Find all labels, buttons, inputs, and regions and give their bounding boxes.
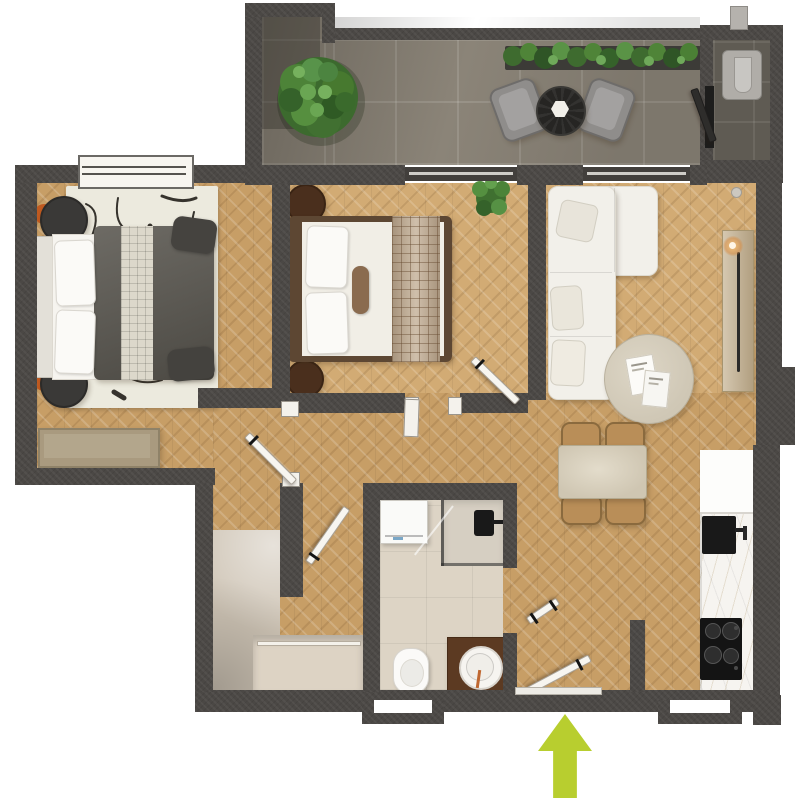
chair-cushion bbox=[585, 86, 626, 132]
bed-main-accent-pillow-1 bbox=[170, 215, 218, 255]
wall-corner-bottom-right bbox=[753, 695, 781, 725]
sofa-pillow-2 bbox=[550, 285, 585, 331]
bed-second-bolster bbox=[352, 266, 369, 314]
shower-glass-horizontal bbox=[441, 563, 505, 566]
wall-bedroom-second-right bbox=[528, 183, 546, 400]
wall-bathroom-left bbox=[363, 483, 380, 692]
entrance-arrow bbox=[538, 714, 592, 798]
toilet bbox=[393, 648, 429, 694]
coffee-table-magazine-2 bbox=[641, 370, 671, 409]
sofa-seam-2 bbox=[550, 336, 612, 337]
balcony-planter-flowers bbox=[503, 38, 703, 74]
washing-machine bbox=[380, 500, 428, 544]
heater-pipe-body bbox=[734, 57, 752, 93]
burner-1 bbox=[705, 623, 721, 639]
bed-main-headboard bbox=[34, 236, 54, 378]
wall-kitchen-stub bbox=[630, 620, 645, 692]
console-candle bbox=[729, 242, 736, 249]
notch-left-bottom bbox=[362, 712, 444, 724]
wall-exterior-right-upper bbox=[756, 165, 782, 367]
dining-table bbox=[558, 445, 647, 499]
sofa-seam-3 bbox=[614, 188, 615, 272]
bed-main-runner bbox=[121, 226, 153, 380]
sofa-pillow-3 bbox=[550, 339, 586, 387]
door-jamb-3 bbox=[448, 397, 462, 415]
wall-balcony-step bbox=[322, 3, 335, 43]
wall-hall-stub bbox=[280, 483, 303, 597]
wall-bathroom-right-lower bbox=[503, 633, 517, 692]
wall-thermostat bbox=[731, 187, 742, 198]
door-jamb-1 bbox=[281, 401, 299, 417]
wall-balcony-band-c bbox=[690, 165, 707, 185]
water-heater bbox=[722, 50, 762, 100]
kitchen-fridge-cabinet bbox=[700, 450, 755, 514]
wall-bedroom-main-bottom bbox=[15, 468, 215, 485]
wall-bedroom-main-south bbox=[198, 388, 290, 408]
kitchen-sink bbox=[702, 516, 736, 554]
wall-balcony-top bbox=[335, 28, 707, 40]
chair-cushion bbox=[497, 86, 538, 132]
bed-second-runner bbox=[392, 216, 440, 362]
notch-right-bottom bbox=[658, 712, 742, 724]
window-bedroom-main bbox=[78, 155, 194, 189]
cooktop-knob-2 bbox=[734, 666, 738, 670]
wall-entry-left bbox=[195, 483, 213, 692]
sofa-seam-1 bbox=[550, 272, 612, 273]
bench-top bbox=[44, 434, 150, 458]
wall-exterior-left bbox=[15, 165, 37, 485]
wardrobe-track bbox=[257, 641, 361, 646]
wall-bedrooms-divider bbox=[272, 183, 290, 405]
wall-exterior-right-bump bbox=[756, 367, 795, 445]
bed-second-pillow-1 bbox=[305, 225, 349, 288]
sofa-pillow-1 bbox=[554, 198, 599, 243]
console-handle bbox=[737, 252, 740, 372]
bed-second-pillow-2 bbox=[305, 291, 349, 354]
burner-2 bbox=[722, 622, 740, 640]
notch-left-inset bbox=[374, 700, 432, 713]
wall-balcony-left bbox=[245, 3, 262, 177]
bed-main-pillow-1 bbox=[54, 239, 96, 306]
toilet-seat bbox=[400, 659, 424, 687]
wall-utility-right bbox=[770, 25, 783, 165]
sliding-door-bedroom-second bbox=[405, 167, 517, 181]
shower-head bbox=[474, 510, 494, 536]
wall-balcony-band-a bbox=[245, 165, 405, 185]
wall-balcony-band-b bbox=[517, 165, 583, 185]
wall-bathroom-top bbox=[363, 483, 517, 500]
burner-3 bbox=[704, 646, 722, 664]
balcony-tree bbox=[263, 42, 373, 154]
washer-indicator bbox=[393, 537, 403, 540]
burner-4 bbox=[723, 648, 739, 664]
kitchen-cooktop bbox=[700, 618, 742, 680]
shower-glass-vertical bbox=[441, 500, 444, 566]
cooktop-knob-1 bbox=[734, 626, 738, 630]
wall-exterior-right-lower bbox=[753, 445, 780, 695]
wall-bathroom-right-upper bbox=[503, 500, 517, 568]
entrance-threshold bbox=[515, 687, 602, 695]
wall-bedroom-second-south-a bbox=[290, 393, 405, 413]
sliding-door-living bbox=[583, 167, 690, 181]
bed-main-pillow-2 bbox=[54, 309, 96, 374]
vent-pipe bbox=[730, 6, 748, 30]
floor-plan bbox=[0, 0, 800, 800]
bed-main-accent-pillow-2 bbox=[166, 346, 215, 383]
hall-white-panel bbox=[403, 399, 419, 438]
storage-bench bbox=[38, 428, 160, 468]
washer-panel-line bbox=[385, 535, 423, 537]
notch-right-inset bbox=[670, 700, 730, 713]
kitchen-faucet-base bbox=[743, 526, 747, 540]
